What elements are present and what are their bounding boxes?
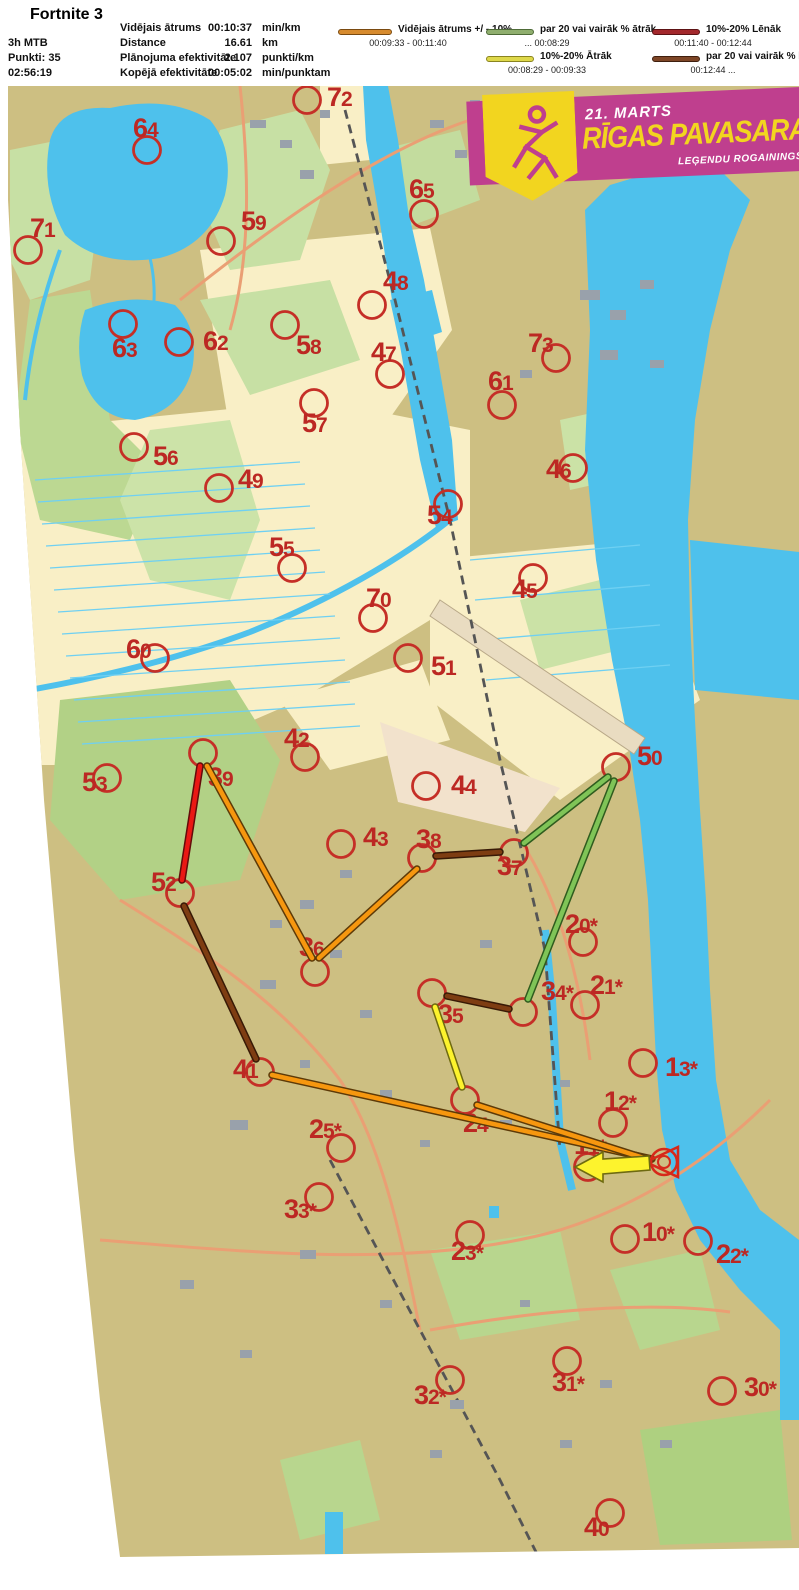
page-title: Fortnite 3 (30, 6, 103, 24)
legend-swatch-slow20 (652, 56, 700, 62)
class-label: 3h MTB (8, 37, 48, 49)
stat-value: 00:10:37 (196, 22, 252, 34)
legend-label: par 20 vai vairāk % ātrāk (540, 24, 656, 35)
stat-value: 16.61 (196, 37, 252, 49)
stat-value: 2.107 (196, 52, 252, 64)
legend-range: 00:08:29 - 00:09:33 (492, 65, 602, 75)
legend-range: 00:12:44 ... (658, 65, 768, 75)
stat-value: 00:05:02 (196, 67, 252, 79)
stat-unit: punkti/km (262, 52, 314, 64)
legend-swatch-slow10 (652, 29, 700, 35)
legend-swatch-fast10 (486, 56, 534, 62)
legend-swatch-fast20 (486, 29, 534, 35)
stat-unit: km (262, 37, 278, 49)
elapsed-time: 02:56:19 (8, 67, 52, 79)
points-label: Punkti: 35 (8, 52, 61, 64)
legend-label: 10%-20% Lēnāk (706, 24, 781, 35)
legend-range: 00:11:40 - 00:12:44 (658, 38, 768, 48)
results-map-page: { "title": "Fortnite 3", "header": { "cl… (0, 0, 799, 1590)
legend-label: 10%-20% Ātrāk (540, 51, 612, 62)
course-map: 7264657159486362584773615756494654554570… (0, 0, 799, 1590)
legend-label: par 20 vai vairāk % lēnāk (706, 51, 799, 62)
legend-range: ... 00:08:29 (492, 38, 602, 48)
stat-unit: min/km (262, 22, 301, 34)
legend-range: 00:09:33 - 00:11:40 (348, 38, 468, 48)
stat-unit: min/punktam (262, 67, 330, 79)
event-logo-shield (482, 91, 579, 207)
legend-swatch-avg (338, 29, 392, 35)
header: Fortnite 3 3h MTB Punkti: 35 02:56:19 Vi… (0, 0, 799, 86)
event-banner: 21. MARTS RĪGAS PAVASARA LEĢENDU ROGAINI… (466, 86, 799, 185)
